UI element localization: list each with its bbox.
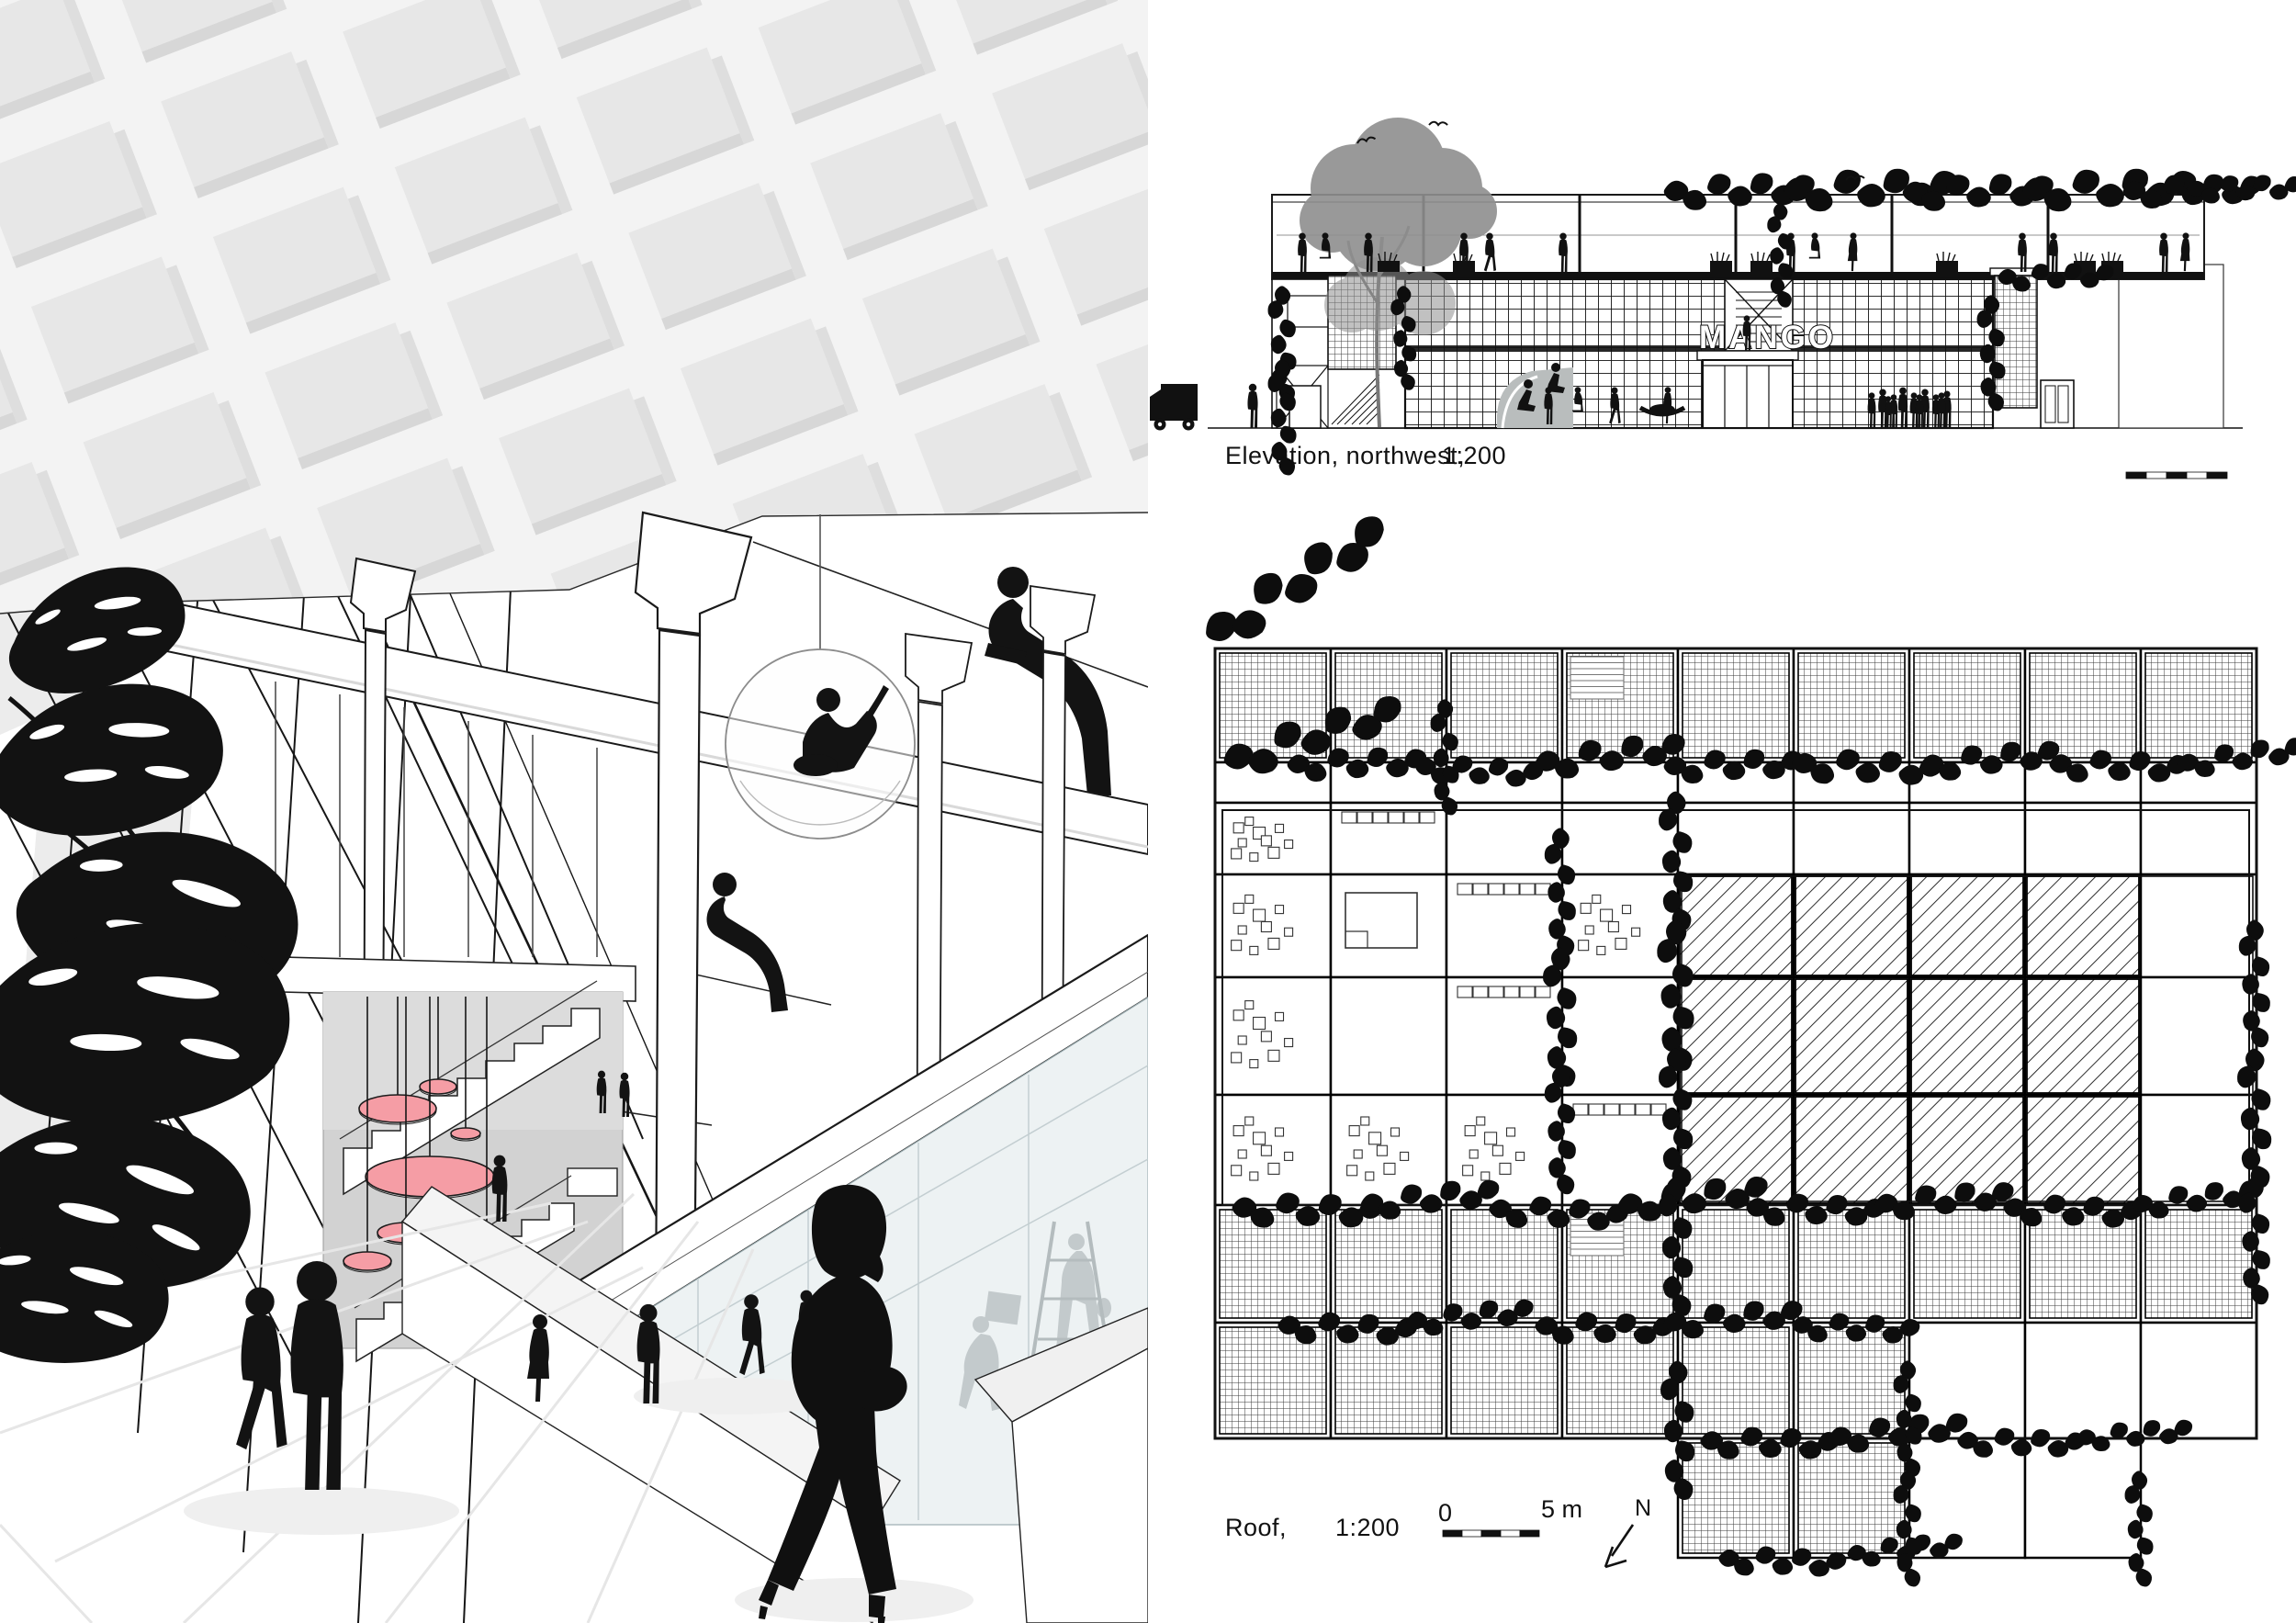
scalebar-five: 5 m [1541,1495,1582,1523]
right-wing [2119,265,2223,428]
roof-cell [1562,874,1678,977]
pendant-disc [359,1095,436,1122]
roof-cell [1215,1095,1331,1205]
roof-cell [1678,803,1794,874]
north-label: N [1635,1495,1651,1521]
roof-cell [1215,977,1331,1095]
roof-plan: Roof, 1:200 0 5 m N [1191,502,2296,1589]
elevation-scale: 1:200 [1442,442,1506,469]
pendant-disc [420,1079,456,1094]
planter-icon [1750,261,1773,272]
roof-cell [1331,1095,1446,1205]
roof-cell [2141,874,2257,977]
roof-cell [1215,874,1331,977]
roof-cell [1331,977,1446,1095]
roof-cell [2141,1095,2257,1205]
mango-sign: MANGO [1699,320,1836,355]
entrance [1703,360,1793,428]
planter-icon [1936,261,1958,272]
scalebar-zero: 0 [1438,1499,1452,1527]
right-door [2041,380,2074,428]
planter-icon [1378,261,1400,272]
roof-cell [2141,1323,2257,1438]
roof-cell [1794,803,1909,874]
elevation-title: Elevation, northwest, [1225,442,1465,469]
presentation-board: MANGO [0,0,2296,1623]
roof-cell [1562,762,1678,803]
perspective-rendering [0,0,1148,1623]
roof-title: Roof, [1225,1514,1287,1541]
planter-icon [1710,261,1732,272]
elevation-scalebar [2126,472,2227,479]
roof-cell [2025,803,2141,874]
roof-cell [1446,803,1562,874]
roof-cell [1909,803,2025,874]
roof-cell [2025,1438,2141,1558]
planter-icon [1453,261,1475,272]
roof-scale: 1:200 [1335,1514,1400,1541]
roof-cell [2141,803,2257,874]
roof-cell [1215,803,1331,874]
roof-cell [1446,1095,1562,1205]
drawings-panel: MANGO [1148,0,2296,1623]
pendant-disc [451,1128,480,1139]
pendant-disc [343,1252,391,1270]
roof-cell [2025,1323,2141,1438]
